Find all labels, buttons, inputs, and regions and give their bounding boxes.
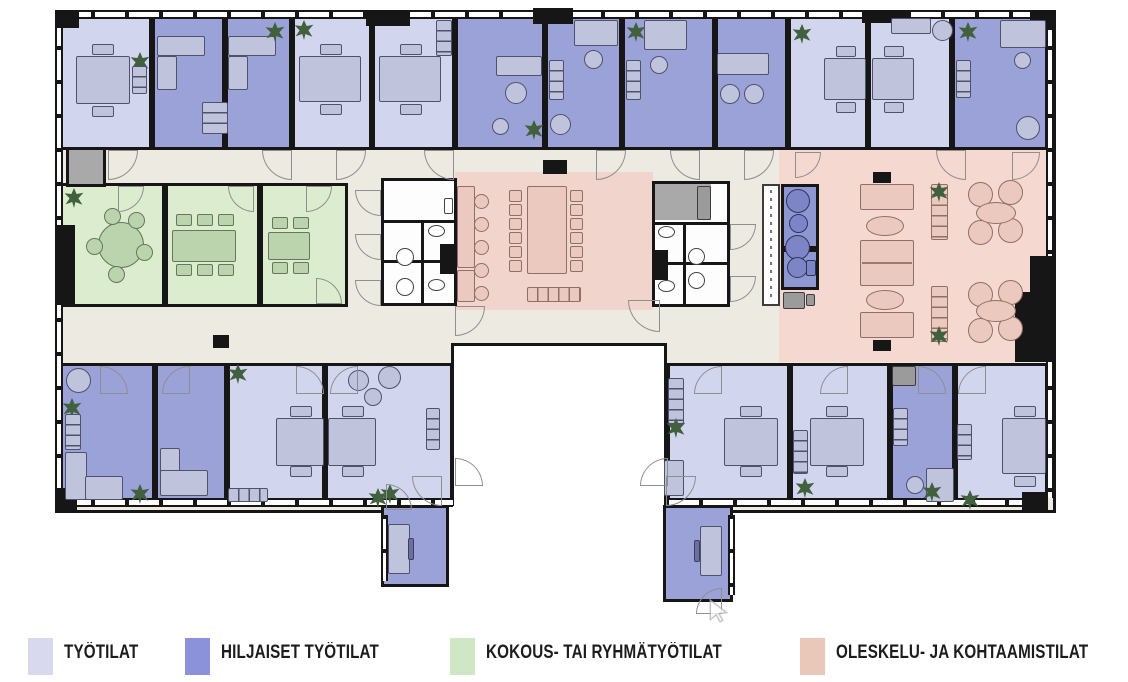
chair (396, 248, 414, 266)
chair (378, 366, 401, 389)
desk (1014, 476, 1036, 487)
elevator (66, 147, 106, 187)
chair (932, 20, 953, 41)
chair (474, 194, 489, 209)
desk (717, 53, 769, 75)
monitor (408, 538, 414, 560)
desk (1002, 418, 1046, 474)
chair (787, 257, 808, 278)
shelf (65, 414, 81, 450)
desk (92, 106, 114, 117)
desk (290, 406, 312, 417)
desk (570, 190, 583, 202)
legend-swatch (28, 638, 53, 675)
wall-thin (654, 222, 728, 225)
window-band (1046, 12, 1054, 498)
desk (884, 46, 904, 57)
legend-label: OLESKELU- JA KOHTAAMISTILAT (836, 642, 1088, 664)
desk (892, 366, 916, 386)
desk (218, 214, 234, 226)
desk (328, 418, 376, 466)
wall-segment (55, 225, 75, 305)
shelf (132, 66, 147, 94)
wall-thin (421, 220, 424, 306)
desk (320, 104, 342, 115)
desk (379, 56, 441, 102)
desk (157, 56, 177, 90)
desk (320, 44, 342, 55)
chair (492, 118, 509, 135)
desk (92, 44, 114, 55)
chair (650, 56, 668, 74)
chair (744, 84, 764, 104)
desk (509, 246, 522, 258)
desk (509, 190, 522, 202)
chair (474, 263, 489, 278)
desk (872, 58, 914, 100)
shelf (549, 60, 564, 100)
desk (197, 214, 213, 226)
window-band (728, 515, 735, 595)
wall-thin (383, 260, 455, 263)
desk (276, 418, 324, 466)
desk (509, 232, 522, 244)
wall-segment (1022, 492, 1048, 513)
desk (860, 184, 914, 210)
desk (783, 292, 805, 309)
mouse-cursor (706, 598, 732, 624)
chair (720, 84, 740, 104)
table-oval (866, 290, 904, 310)
desk (293, 262, 309, 274)
legend-label: TYÖTILAT (64, 642, 138, 664)
desk (272, 217, 288, 229)
shelf (793, 430, 808, 474)
window-band (665, 498, 1048, 507)
wall-segment (213, 335, 229, 348)
courtyard-notch (451, 343, 667, 513)
chair (688, 272, 705, 289)
desk (509, 218, 522, 230)
table-oval (658, 226, 675, 238)
desk (860, 312, 914, 338)
desk (342, 406, 364, 417)
chair (505, 82, 527, 104)
legend: TYÖTILATHILJAISET TYÖTILATKOKOUS- TAI RY… (0, 628, 1128, 682)
shelf (957, 424, 972, 460)
table-oval (976, 202, 1016, 224)
desk (457, 186, 475, 268)
shelf (956, 60, 971, 98)
desk (218, 264, 234, 276)
chair (1016, 116, 1040, 140)
legend-label: HILJAISET TYÖTILAT (221, 642, 379, 664)
chair (86, 238, 103, 255)
wall-segment (55, 10, 79, 28)
shelf (426, 408, 440, 450)
chair (66, 368, 91, 393)
desk (724, 418, 778, 466)
chair (968, 220, 993, 245)
desk (293, 217, 309, 229)
chair (968, 318, 993, 343)
desk (884, 102, 904, 113)
monitor (694, 540, 700, 562)
desk (160, 470, 208, 496)
desk (444, 198, 453, 214)
desk (160, 448, 180, 472)
wall-thin (862, 262, 912, 264)
table-oval (428, 225, 445, 237)
desk (574, 20, 618, 46)
desk (290, 466, 312, 477)
chair (128, 212, 145, 229)
bench (527, 287, 581, 302)
desk (836, 102, 856, 113)
notch-opening (448, 506, 670, 516)
table-oval (428, 279, 445, 291)
desk (157, 36, 205, 56)
chair (474, 217, 489, 232)
desk (740, 406, 762, 417)
desk (342, 466, 364, 477)
desk (388, 524, 410, 574)
desk (570, 260, 583, 272)
shelf (202, 102, 228, 134)
desk (400, 44, 422, 55)
desk (740, 466, 762, 477)
wall-segment (366, 10, 410, 26)
legend-swatch (450, 638, 475, 675)
desk (826, 466, 848, 477)
desk (400, 104, 422, 115)
legend-swatch (185, 638, 210, 675)
chair (364, 388, 382, 406)
desk (926, 468, 954, 502)
floor-plan (0, 0, 1128, 620)
wall-thin (683, 222, 686, 306)
wall-segment (543, 160, 567, 174)
legend-label: KOKOUS- TAI RYHMÄTYÖTILAT (486, 642, 722, 664)
wall-segment (652, 250, 668, 280)
desk (806, 260, 816, 276)
shelf (436, 20, 452, 56)
desk (299, 56, 361, 102)
shelf (893, 408, 908, 446)
desk (268, 232, 310, 260)
wall-segment (533, 8, 573, 24)
chair (550, 114, 571, 135)
legend-swatch (800, 638, 825, 675)
table-oval (976, 300, 1016, 322)
desk (76, 56, 130, 104)
chair (584, 50, 603, 69)
desk (228, 36, 276, 56)
desk (176, 214, 192, 226)
table-oval (866, 216, 904, 236)
desk (570, 204, 583, 216)
desk (644, 20, 687, 50)
desk (197, 264, 213, 276)
desk (527, 186, 567, 274)
desk (826, 406, 848, 417)
wall-segment (873, 172, 891, 183)
shelf (626, 60, 641, 100)
desk (570, 232, 583, 244)
desk (806, 294, 815, 306)
wall-thin (383, 220, 455, 223)
chair (136, 244, 153, 261)
desk (1000, 20, 1046, 48)
desk (570, 246, 583, 258)
room-quiet (715, 12, 788, 150)
desk (700, 526, 722, 576)
chair (474, 240, 489, 255)
desk (228, 56, 248, 90)
desk (509, 260, 522, 272)
counter-line (770, 190, 772, 300)
chair (906, 476, 924, 494)
table-oval (658, 280, 675, 292)
desk (496, 56, 542, 76)
chair (998, 180, 1023, 205)
desk (836, 46, 856, 57)
chair (396, 278, 414, 296)
chair (474, 286, 489, 301)
desk (1014, 406, 1036, 417)
chair (1014, 52, 1031, 69)
bench (228, 488, 268, 502)
chair (688, 248, 705, 265)
desk (697, 186, 711, 220)
desk (65, 452, 87, 500)
chair (786, 189, 810, 213)
desk (824, 58, 866, 100)
desk (810, 418, 864, 466)
chair (108, 266, 125, 283)
desk (176, 264, 192, 276)
desk (272, 262, 288, 274)
shelf (668, 378, 684, 424)
window-band (381, 515, 388, 581)
wall-segment (873, 340, 891, 351)
desk (570, 218, 583, 230)
desk (172, 230, 236, 262)
desk (457, 270, 475, 302)
chair (789, 214, 808, 233)
desk (891, 18, 931, 34)
desk (85, 476, 123, 500)
wall-segment (440, 244, 457, 274)
desk (509, 204, 522, 216)
